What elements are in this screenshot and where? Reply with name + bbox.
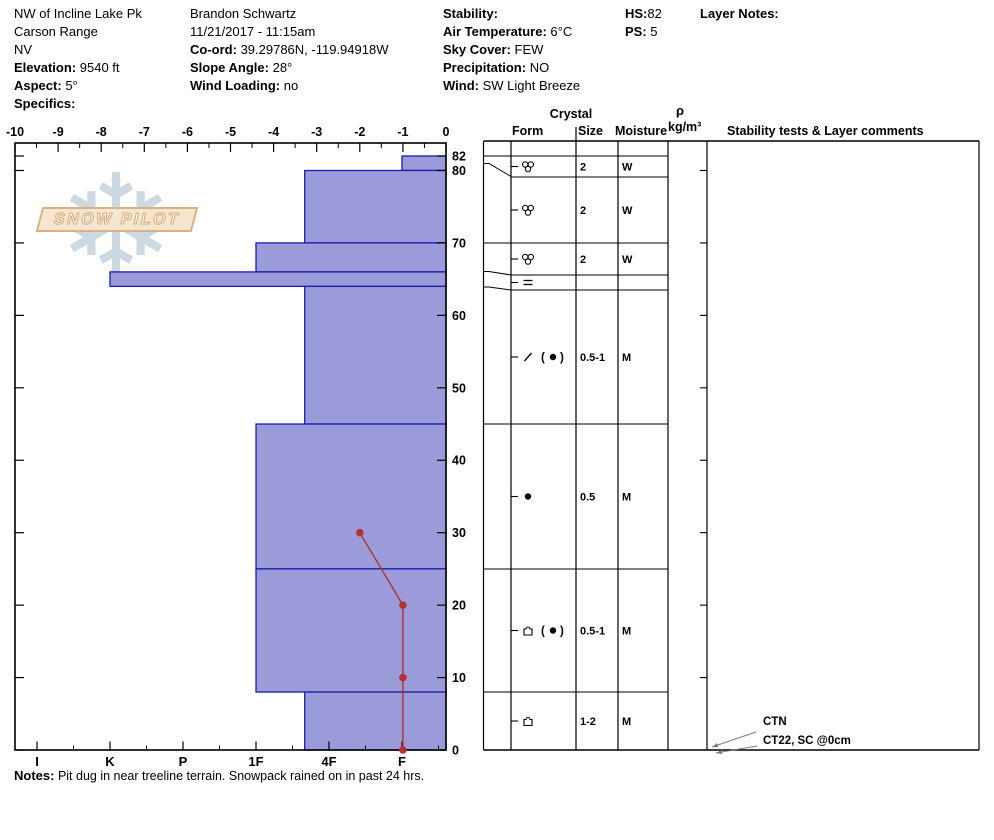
temperature-point — [399, 601, 407, 609]
aspect-label: Aspect: — [14, 78, 62, 93]
depth-axis-label: 40 — [452, 454, 466, 468]
crystal-size-value: 0.5-1 — [580, 626, 605, 638]
stability-label: Stability: — [443, 6, 498, 21]
grain-form-decomposing-icon — [525, 353, 532, 361]
ps-label: PS: — [625, 24, 647, 39]
moisture-header: Moisture — [615, 124, 667, 138]
moisture-value: M — [622, 352, 631, 364]
density-symbol-header: ρ — [672, 103, 688, 118]
temp-axis-label: -5 — [225, 125, 236, 139]
snow-layer-bar — [305, 286, 446, 424]
wind-loading-label: Wind Loading: — [190, 78, 280, 93]
aspect-value: 5° — [65, 78, 77, 93]
stability-line: Stability: — [443, 5, 580, 23]
notes-text: Pit dug in near treeline terrain. Snowpa… — [58, 769, 424, 783]
crystal-size-value: 1-2 — [580, 716, 596, 728]
coord-line: Co-ord: 39.29786N, -119.94918W — [190, 41, 388, 59]
stability-test-arrowhead — [712, 743, 718, 747]
elevation-label: Elevation: — [14, 60, 76, 75]
moisture-value: M — [622, 492, 631, 504]
notes-label: Notes: — [14, 768, 54, 783]
snowpilot-profile-page: { "header": { "col1": { "lines": ["NW of… — [0, 0, 994, 840]
temp-axis-label: -10 — [6, 125, 24, 139]
grain-form-faceted-icon — [524, 627, 532, 635]
hs-label: HS: — [625, 6, 647, 21]
grain-form-melt-cluster-icon — [525, 259, 530, 264]
stability-test-result-ct22: CT22, SC @0cm — [763, 735, 851, 747]
specifics-label: Specifics: — [14, 96, 75, 111]
temp-axis-label: -1 — [397, 125, 408, 139]
moisture-value: W — [622, 162, 633, 174]
snow-layer-bar — [256, 424, 446, 569]
hardness-axis-label: I — [35, 754, 39, 769]
crystal-header: Crystal — [531, 107, 611, 121]
header-layer-notes-block: Layer Notes: — [700, 5, 779, 23]
temp-axis-label: -7 — [139, 125, 150, 139]
hardness-axis-label: 4F — [321, 754, 336, 769]
sky-cover-line: Sky Cover: FEW — [443, 41, 580, 59]
crystal-size-value: 2 — [580, 254, 586, 266]
wind-label: Wind: — [443, 78, 479, 93]
grain-form-rounded-icon — [525, 493, 531, 499]
snow-layer-bar — [305, 692, 446, 750]
observer-name: Brandon Schwartz — [190, 5, 388, 23]
snow-layer-bar — [305, 170, 446, 242]
grain-form-melt-cluster-icon — [525, 210, 530, 215]
stability-test-arrow — [712, 732, 756, 747]
ps-value: 5 — [650, 24, 657, 39]
pit-name: NW of Incline Lake Pk — [14, 5, 142, 23]
sky-cover-label: Sky Cover: — [443, 42, 511, 57]
header-location-block: NW of Incline Lake Pk Carson Range NV El… — [14, 5, 142, 113]
snow-layer-bar — [256, 243, 446, 272]
density-units-header: kg/m³ — [668, 120, 701, 134]
depth-axis-label: 70 — [452, 236, 466, 250]
precipitation-line: Precipitation: NO — [443, 59, 580, 77]
form-secondary-paren: ) — [560, 626, 564, 638]
moisture-value: W — [622, 254, 633, 266]
depth-axis-label: 50 — [452, 381, 466, 395]
elevation-line: Elevation: 9540 ft — [14, 59, 142, 77]
wind-value: SW Light Breeze — [483, 78, 581, 93]
air-temp-line: Air Temperature: 6°C — [443, 23, 580, 41]
stability-test-result-ctn: CTN — [763, 716, 787, 728]
state-name: NV — [14, 41, 142, 59]
grain-form-rounded-icon — [550, 627, 556, 633]
header-conditions-block: Stability: Air Temperature: 6°C Sky Cove… — [443, 5, 580, 95]
hardness-axis-label: F — [398, 754, 406, 769]
crystal-size-value: 2 — [580, 162, 586, 174]
pit-notes: Notes: Pit dug in near treeline terrain.… — [14, 768, 424, 783]
elevation-value: 9540 ft — [80, 60, 120, 75]
snow-layer-bar — [402, 156, 446, 170]
form-secondary-paren: ) — [560, 352, 564, 364]
coord-label: Co-ord: — [190, 42, 237, 57]
temp-axis-label: -3 — [311, 125, 322, 139]
precipitation-label: Precipitation: — [443, 60, 526, 75]
slope-angle-line: Slope Angle: 28° — [190, 59, 388, 77]
ps-line: PS: 5 — [625, 23, 662, 41]
grain-form-faceted-icon — [524, 718, 532, 726]
aspect-line: Aspect: 5° — [14, 77, 142, 95]
layer-leader-line — [484, 287, 512, 290]
hardness-axis-label: P — [179, 754, 188, 769]
depth-axis-label: 30 — [452, 526, 466, 540]
temp-axis-label: 0 — [443, 125, 450, 139]
snow-layer-bar — [256, 569, 446, 692]
air-temp-label: Air Temperature: — [443, 24, 547, 39]
grain-form-rounded-icon — [550, 354, 556, 360]
depth-axis-label: 0 — [452, 744, 459, 758]
form-secondary-paren: ( — [541, 352, 545, 364]
header-summary-block: HS:82 PS: 5 — [625, 5, 662, 41]
precipitation-value: NO — [530, 60, 550, 75]
depth-axis-label: 82 — [452, 150, 466, 164]
wind-line: Wind: SW Light Breeze — [443, 77, 580, 95]
air-temp-value: 6°C — [550, 24, 572, 39]
size-header: Size — [578, 124, 603, 138]
depth-axis-label: 20 — [452, 599, 466, 613]
layer-leader-line — [484, 272, 512, 276]
specifics-line: Specifics: — [14, 95, 142, 113]
wind-loading-line: Wind Loading: no — [190, 77, 388, 95]
moisture-value: M — [622, 716, 631, 728]
temperature-point — [399, 674, 407, 682]
header-observer-block: Brandon Schwartz 11/21/2017 - 11:15am Co… — [190, 5, 388, 95]
temp-axis-label: -8 — [96, 125, 107, 139]
slope-angle-value: 28° — [273, 60, 293, 75]
temperature-point — [399, 746, 407, 754]
temp-axis-label: -9 — [53, 125, 64, 139]
crystal-size-value: 0.5 — [580, 492, 595, 504]
moisture-value: M — [622, 626, 631, 638]
form-secondary-paren: ( — [541, 626, 545, 638]
hs-value: 82 — [647, 6, 661, 21]
depth-axis-label: 60 — [452, 309, 466, 323]
depth-axis-label: 10 — [452, 671, 466, 685]
moisture-value: W — [622, 205, 633, 217]
temp-axis-label: -6 — [182, 125, 193, 139]
wind-loading-value: no — [284, 78, 298, 93]
range-name: Carson Range — [14, 23, 142, 41]
hardness-axis-label: K — [105, 754, 115, 769]
slope-angle-label: Slope Angle: — [190, 60, 269, 75]
sky-cover-value: FEW — [515, 42, 544, 57]
coord-value: 39.29786N, -119.94918W — [241, 42, 389, 57]
temp-axis-label: -2 — [354, 125, 365, 139]
crystal-size-value: 2 — [580, 205, 586, 217]
stability-tests-header: Stability tests & Layer comments — [727, 124, 924, 138]
form-header: Form — [512, 124, 543, 138]
depth-axis-label: 80 — [452, 164, 466, 178]
layer-leader-line — [484, 164, 512, 177]
hardness-axis-label: 1F — [248, 754, 263, 769]
layer-notes-line: Layer Notes: — [700, 5, 779, 23]
snow-layer-bar — [110, 272, 446, 286]
observation-datetime: 11/21/2017 - 11:15am — [190, 23, 388, 41]
temp-axis-label: -4 — [268, 125, 279, 139]
grain-form-melt-cluster-icon — [525, 166, 530, 171]
temperature-point — [356, 529, 364, 537]
hs-line: HS:82 — [625, 5, 662, 23]
layer-notes-label: Layer Notes: — [700, 6, 779, 21]
crystal-size-value: 0.5-1 — [580, 352, 605, 364]
